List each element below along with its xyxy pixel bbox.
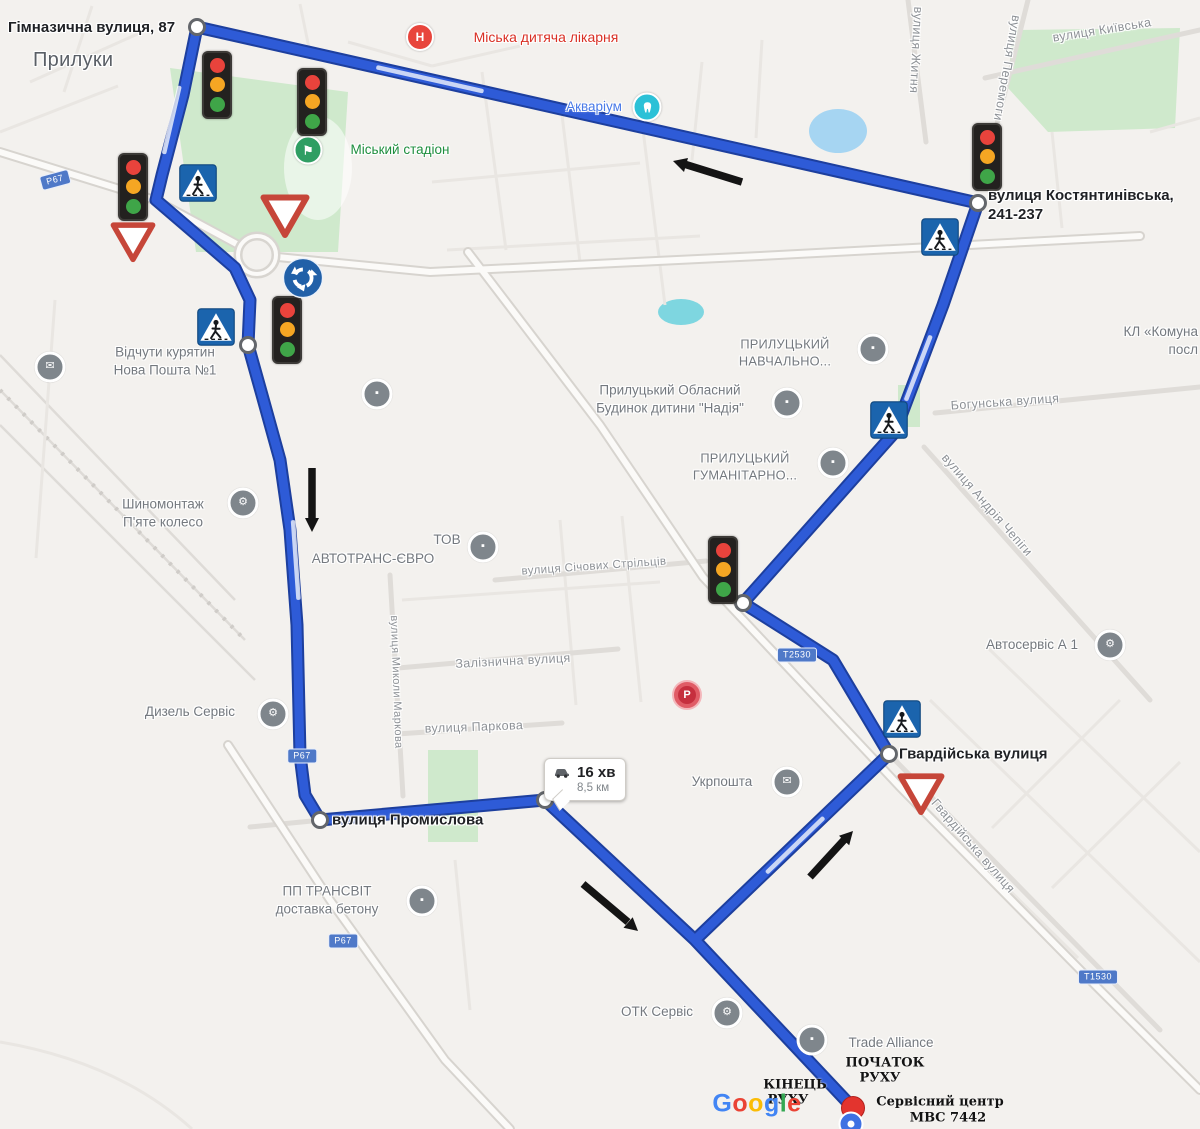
roundabout-sign-icon <box>282 257 324 299</box>
building-icon: ▪ <box>785 397 789 408</box>
route-duration: 16 хв <box>577 764 615 781</box>
destination-label-line1: Сервісний центр <box>876 1095 1003 1112</box>
waypoint-gimnazychna[interactable] <box>188 18 206 36</box>
label-dyzel-servis[interactable]: Дизель Сервіс <box>145 703 235 721</box>
red-poi-marker[interactable]: Р <box>672 680 702 710</box>
gear-icon: ⚙ <box>238 497 248 508</box>
parking-icon: Р <box>683 689 690 701</box>
label-shynomontazh[interactable]: ШиномонтажП'яте колесо <box>122 495 204 530</box>
traffic-light-icon <box>118 153 148 221</box>
envelope-icon: ✉ <box>782 776 791 787</box>
label-stadium[interactable]: Міський стадіон <box>351 141 450 159</box>
poi-avtotrans[interactable]: ▪ <box>468 532 499 563</box>
poi-shynomontazh[interactable]: ⚙ <box>228 488 259 519</box>
pedestrian-crossing-icon <box>197 308 235 346</box>
aquarium-marker[interactable] <box>633 93 662 122</box>
pedestrian-crossing-icon <box>870 401 908 439</box>
pedestrian-crossing-icon <box>179 164 217 202</box>
traffic-light-icon <box>297 68 327 136</box>
label-ukrposhta[interactable]: Укрпошта <box>692 773 753 791</box>
city-label: Прилуки <box>33 47 113 73</box>
label-transvit[interactable]: ПП ТРАНСВІТдоставка бетону <box>276 882 379 917</box>
traffic-light-icon <box>272 296 302 364</box>
building-icon: ▪ <box>831 457 835 468</box>
envelope-icon: ✉ <box>45 361 54 372</box>
poi-generic-1[interactable]: ▪ <box>362 379 393 410</box>
google-logo[interactable]: Google <box>712 1090 801 1119</box>
street-label-peremohy: вулиця Перемоги <box>990 14 1025 122</box>
road-shield-p67: Р67 <box>328 934 358 949</box>
label-avtoservis[interactable]: Автосервіс А 1 <box>986 636 1078 654</box>
gear-icon: ⚙ <box>268 708 278 719</box>
label-komuna[interactable]: КЛ «Комунапосл <box>1123 323 1198 358</box>
building-icon: ▪ <box>375 388 379 399</box>
flag-icon: ⚑ <box>303 143 314 157</box>
street-label-bohunska: Богунська вулиця <box>950 390 1060 414</box>
tooth-icon <box>640 100 654 114</box>
waypoint-promyslova[interactable] <box>311 811 329 829</box>
poi-ukrposhta[interactable]: ✉ <box>772 767 803 798</box>
poi-navchalnyi[interactable]: ▪ <box>858 334 889 365</box>
stadium-marker[interactable]: ⚑ <box>294 136 323 165</box>
gear-icon: ⚙ <box>722 1007 732 1018</box>
waypoint-kostiantynivska[interactable] <box>969 194 987 212</box>
poi-transvit[interactable]: ▪ <box>407 886 438 917</box>
destination-label-line2: МВС 7442 <box>910 1111 986 1128</box>
label-otk-servis[interactable]: ОТК Сервіс <box>621 1003 693 1021</box>
poi-trade-alliance[interactable]: ▪ <box>797 1025 828 1056</box>
label-navchalnyi[interactable]: ПРИЛУЦЬКИЙНАВЧАЛЬНО... <box>739 336 831 369</box>
poi-budynok-dytyny[interactable]: ▪ <box>772 388 803 419</box>
building-icon: ▪ <box>481 541 485 552</box>
route-start-label-line2: РУХУ <box>860 1071 901 1088</box>
street-label-chepihy: вулиця Андрія Чепіги <box>938 450 1036 559</box>
park-northeast <box>1008 28 1180 132</box>
label-promyslova[interactable]: вулиця Промислова <box>332 810 483 830</box>
street-label-zhytnia: вулиця Житня <box>906 6 927 93</box>
street-label-markova: вулиця Миколи Маркова <box>387 615 406 749</box>
label-avtotrans-line1[interactable]: ТОВ <box>433 531 460 549</box>
label-budynok-dytyny[interactable]: Прилуцький ОбласнийБудинок дитини "Надія… <box>596 381 744 416</box>
car-icon <box>553 766 571 779</box>
label-nova-poshta[interactable]: Відчути курятинНова Пошта №1 <box>114 343 217 378</box>
label-avtotrans-line2[interactable]: АВТОТРАНС-ЄВРО <box>312 550 435 568</box>
road-shield-t1530: Т1530 <box>1078 970 1118 985</box>
label-humanitarnyi[interactable]: ПРИЛУЦЬКИЙГУМАНІТАРНО... <box>693 450 797 483</box>
street-label-parkova: вулиця Паркова <box>424 717 523 737</box>
poi-avtoservis[interactable]: ⚙ <box>1095 630 1126 661</box>
building-icon: ▪ <box>871 343 875 354</box>
building-icon: ▪ <box>420 895 424 906</box>
waypoint-left-descent[interactable] <box>239 336 257 354</box>
lake <box>809 109 867 153</box>
pedestrian-crossing-icon <box>883 700 921 738</box>
building-icon: ▪ <box>810 1034 814 1045</box>
yield-sign-icon <box>260 193 310 239</box>
traffic-light-icon <box>202 51 232 119</box>
waypoint-hvardiiska[interactable] <box>880 745 898 763</box>
yield-sign-icon <box>110 221 156 263</box>
road-shield-t2530: Т2530 <box>777 648 817 663</box>
road-shield-p67: Р67 <box>39 169 71 191</box>
label-hospital[interactable]: Міська дитяча лікарня <box>474 28 619 46</box>
roundabout <box>238 236 276 274</box>
poi-humanitarnyi[interactable]: ▪ <box>818 448 849 479</box>
traffic-light-icon <box>972 123 1002 191</box>
road-shield-p67: Р67 <box>287 749 317 764</box>
gear-icon: ⚙ <box>1105 639 1115 650</box>
pond <box>658 299 704 325</box>
label-kostiantynivska[interactable]: вулиця Костянтинівська,241-237 <box>988 187 1174 225</box>
route-distance: 8,5 км <box>577 782 615 794</box>
label-hvardiiska[interactable]: Гвардійська вулиця <box>899 744 1048 764</box>
label-trade-alliance[interactable]: Trade Alliance <box>848 1034 933 1052</box>
poi-nova-poshta[interactable]: ✉ <box>35 352 66 383</box>
poi-dyzel-servis[interactable]: ⚙ <box>258 699 289 730</box>
traffic-light-icon <box>708 536 738 604</box>
route-street-overlay <box>162 65 933 875</box>
street-label-kyivska: вулиця Київська <box>1051 14 1152 46</box>
street-label-sichovykh: вулиця Січових Стрільців <box>521 554 667 579</box>
label-aquarium[interactable]: Акваріум <box>566 98 622 116</box>
hospital-marker[interactable]: Н <box>406 23 434 51</box>
hospital-icon: Н <box>416 30 425 44</box>
poi-otk-servis[interactable]: ⚙ <box>712 998 743 1029</box>
street-label-zaliznychna: Залізнична вулиця <box>455 650 571 672</box>
map-canvas[interactable]: вулиця Київська вулиця Перемоги вулиця Ж… <box>0 0 1200 1129</box>
navigation-start-icon[interactable] <box>839 1112 864 1129</box>
yield-sign-icon <box>897 772 945 816</box>
route-duration-badge[interactable]: 16 хв 8,5 км <box>544 758 626 801</box>
label-gimnazychna-87[interactable]: Гімназична вулиця, 87 <box>8 18 175 38</box>
pedestrian-crossing-icon <box>921 218 959 256</box>
